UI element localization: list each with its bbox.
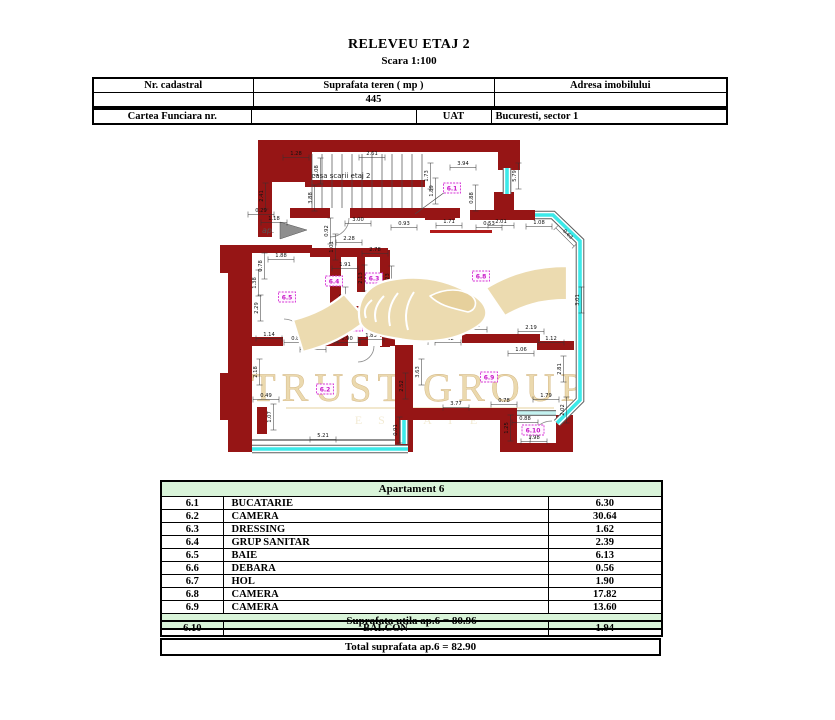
svg-text:3.88: 3.88 <box>308 192 314 204</box>
dimension-label: 2.29 <box>254 295 264 321</box>
area-cell-area: 1.62 <box>548 523 662 536</box>
svg-text:2.01: 2.01 <box>495 219 507 225</box>
area-table-row: 6.9CAMERA13.60 <box>161 601 662 614</box>
area-cell-area: 30.64 <box>548 510 662 523</box>
dimension-label: 1.06 <box>508 347 534 357</box>
info-value-suprafata: 445 <box>253 93 494 108</box>
area-cell-no: 6.2 <box>161 510 223 523</box>
page-title: RELEVEU ETAJ 2 <box>92 37 726 53</box>
dimension-label: 0.88 <box>469 185 479 211</box>
svg-text:2.13: 2.13 <box>358 272 364 284</box>
svg-text:6.8: 6.8 <box>476 274 487 281</box>
dimension-label: 1.88 <box>268 253 294 263</box>
dimension-label: 5.21 <box>310 433 336 443</box>
room-label-6.1: 6.1 <box>444 183 461 193</box>
svg-text:3.00: 3.00 <box>352 217 364 223</box>
svg-text:0.88: 0.88 <box>519 416 531 422</box>
svg-text:0.88: 0.88 <box>469 192 475 204</box>
svg-text:6.10: 6.10 <box>526 428 541 435</box>
svg-text:6.3: 6.3 <box>369 276 380 283</box>
uat-label: UAT <box>416 109 491 124</box>
svg-text:6.5: 6.5 <box>282 295 293 302</box>
svg-text:2.19: 2.19 <box>525 325 537 331</box>
area-cell-name: CAMERA <box>223 601 548 614</box>
area-cell-name: CAMERA <box>223 510 548 523</box>
balcony-name: BALCON <box>223 621 548 636</box>
area-cell-no: 6.7 <box>161 575 223 588</box>
room-label-6.10: 6.10 <box>522 425 544 435</box>
dimension-label: 2.19 <box>518 325 544 335</box>
svg-text:1.38: 1.38 <box>252 277 258 289</box>
balcony-area: 1.94 <box>548 621 662 636</box>
svg-text:3.94: 3.94 <box>457 161 469 167</box>
svg-text:0.29: 0.29 <box>255 208 267 214</box>
area-table-row: 6.1BUCATARIE6.30 <box>161 497 662 510</box>
svg-text:3.01: 3.01 <box>575 294 581 306</box>
svg-text:1.25: 1.25 <box>504 422 510 434</box>
svg-text:2.28: 2.28 <box>343 236 355 242</box>
floor-plan: TRUST GROUP ESTATE <box>203 136 605 470</box>
svg-text:3.63: 3.63 <box>415 366 421 378</box>
svg-text:1.71: 1.71 <box>443 219 455 225</box>
area-cell-name: HOL <box>223 575 548 588</box>
dimension-label: 0.78 <box>258 253 268 279</box>
area-cell-area: 6.30 <box>548 497 662 510</box>
dimension-label: 0.92 <box>324 218 334 244</box>
info-header-cadastral: Nr. cadastral <box>93 78 253 93</box>
area-cell-name: DEBARA <box>223 562 548 575</box>
cf-label: Cartea Funciara nr. <box>93 109 251 124</box>
svg-text:1.07: 1.07 <box>267 411 273 423</box>
area-table-row: 6.6DEBARA0.56 <box>161 562 662 575</box>
svg-text:2.61: 2.61 <box>366 151 378 157</box>
svg-text:1.79: 1.79 <box>540 393 552 399</box>
area-cell-no: 6.8 <box>161 588 223 601</box>
carte-funciara-table: Cartea Funciara nr. UAT Bucuresti, secto… <box>92 108 728 125</box>
svg-text:6.9: 6.9 <box>484 375 495 382</box>
room-label-6.3: 6.3 <box>366 273 383 283</box>
dimension-label: 1.73 <box>424 163 434 189</box>
room-label-6.8: 6.8 <box>473 271 490 281</box>
svg-text:5.79: 5.79 <box>512 170 518 182</box>
area-table-row: 6.3DRESSING1.62 <box>161 523 662 536</box>
svg-text:1.73: 1.73 <box>424 170 430 182</box>
room-label-6.2: 6.2 <box>317 384 334 394</box>
area-cell-area: 0.56 <box>548 562 662 575</box>
svg-text:2.02: 2.02 <box>560 404 566 416</box>
svg-text:2.81: 2.81 <box>557 363 563 375</box>
room-label-6.5: 6.5 <box>279 292 296 302</box>
area-cell-name: GRUP SANITAR <box>223 536 548 549</box>
total-table: Total suprafata ap.6 = 82.90 <box>160 638 661 656</box>
area-cell-no: 6.9 <box>161 601 223 614</box>
svg-text:0.93: 0.93 <box>398 221 410 227</box>
svg-text:6.2: 6.2 <box>320 387 331 394</box>
svg-text:0.78: 0.78 <box>498 398 510 404</box>
dimension-label: 3.94 <box>450 161 476 171</box>
info-value-adresa <box>494 93 727 108</box>
info-value-cadastral <box>93 93 253 108</box>
entrance-arrow-icon <box>280 222 307 239</box>
area-table-title: Apartament 6 <box>161 481 662 497</box>
area-table-row: 6.7HOL1.90 <box>161 575 662 588</box>
svg-text:2.18: 2.18 <box>253 366 259 378</box>
room-label-6.4: 6.4 <box>326 276 343 286</box>
cf-value <box>251 109 416 124</box>
svg-text:5.21: 5.21 <box>317 433 329 439</box>
info-header-suprafata: Suprafata teren ( mp ) <box>253 78 494 93</box>
area-cell-name: BUCATARIE <box>223 497 548 510</box>
dimension-label: 1.71 <box>436 219 462 229</box>
svg-text:0.91: 0.91 <box>393 424 399 436</box>
dimension-label: 1.08 <box>526 220 552 230</box>
area-cell-area: 1.90 <box>548 575 662 588</box>
info-table: Nr. cadastral Suprafata teren ( mp ) Adr… <box>92 77 728 108</box>
area-table-row: 6.2CAMERA30.64 <box>161 510 662 523</box>
room-label-6.9: 6.9 <box>481 372 498 382</box>
svg-text:1.14: 1.14 <box>263 332 275 338</box>
area-cell-no: 6.1 <box>161 497 223 510</box>
svg-text:0.49: 0.49 <box>260 393 272 399</box>
svg-text:2.41: 2.41 <box>259 190 265 202</box>
svg-text:1.06: 1.06 <box>515 347 527 353</box>
dimension-label: 2.28 <box>336 236 362 246</box>
svg-text:1.91: 1.91 <box>339 262 351 268</box>
area-table: Apartament 6 6.1BUCATARIE6.306.2CAMERA30… <box>160 480 663 630</box>
svg-text:6.4: 6.4 <box>329 279 340 286</box>
dimension-label: 3.88 <box>308 185 318 211</box>
svg-text:3.77: 3.77 <box>450 401 462 407</box>
area-cell-area: 17.82 <box>548 588 662 601</box>
area-table-row: 6.4GRUP SANITAR2.39 <box>161 536 662 549</box>
dimension-label: 0.93 <box>391 221 417 231</box>
area-total: Total suprafata ap.6 = 82.90 <box>161 639 660 655</box>
svg-text:1.01: 1.01 <box>329 241 335 253</box>
area-table-row: 6.5BAIE6.13 <box>161 549 662 562</box>
area-table-body: 6.1BUCATARIE6.306.2CAMERA30.646.3DRESSIN… <box>161 497 662 614</box>
svg-text:1.08: 1.08 <box>533 220 545 226</box>
area-cell-no: 6.4 <box>161 536 223 549</box>
dimension-label: 1.38 <box>252 270 262 296</box>
area-cell-no: 6.3 <box>161 523 223 536</box>
area-cell-area: 13.60 <box>548 601 662 614</box>
area-cell-no: 6.6 <box>161 562 223 575</box>
uat-value: Bucuresti, sector 1 <box>491 109 727 124</box>
area-cell-area: 6.13 <box>548 549 662 562</box>
svg-text:0.92: 0.92 <box>324 225 330 237</box>
balcony-no: 6.10 <box>161 621 223 636</box>
svg-text:1.89: 1.89 <box>429 185 435 197</box>
svg-text:1.88: 1.88 <box>275 253 287 259</box>
svg-text:1.98: 1.98 <box>528 435 540 441</box>
svg-text:1.28: 1.28 <box>290 151 302 157</box>
svg-text:2.78: 2.78 <box>369 247 381 253</box>
area-cell-name: BAIE <box>223 549 548 562</box>
svg-text:1.08: 1.08 <box>314 165 320 177</box>
entrance-label: ap. <box>262 226 275 235</box>
area-cell-name: CAMERA <box>223 588 548 601</box>
area-cell-area: 2.39 <box>548 536 662 549</box>
svg-text:2.52: 2.52 <box>399 380 405 392</box>
svg-text:1.18: 1.18 <box>268 216 280 222</box>
area-cell-no: 6.5 <box>161 549 223 562</box>
svg-text:6.1: 6.1 <box>447 186 458 193</box>
balcony-table: 6.10 BALCON 1.94 <box>160 620 663 637</box>
svg-text:2.29: 2.29 <box>254 302 260 314</box>
area-cell-name: DRESSING <box>223 523 548 536</box>
cadastral-document-page: RELEVEU ETAJ 2 Scara 1:100 Nr. cadastral… <box>0 0 835 720</box>
page-scale: Scara 1:100 <box>92 55 726 67</box>
area-table-row: 6.8CAMERA17.82 <box>161 588 662 601</box>
svg-text:1.12: 1.12 <box>545 336 557 342</box>
info-header-adresa: Adresa imobilului <box>494 78 727 93</box>
svg-text:0.53: 0.53 <box>483 221 495 227</box>
